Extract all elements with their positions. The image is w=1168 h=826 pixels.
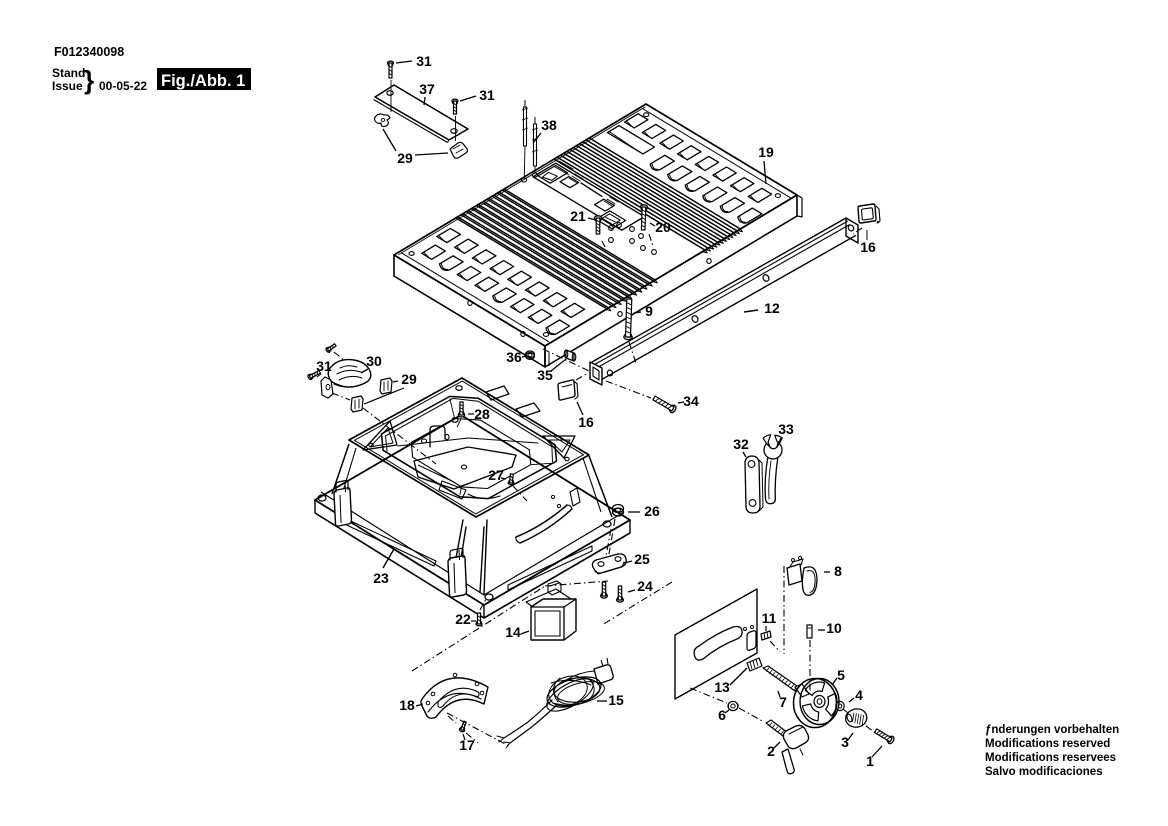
svg-text:2: 2 bbox=[767, 743, 775, 759]
svg-text:27: 27 bbox=[488, 467, 504, 483]
svg-text:33: 33 bbox=[778, 421, 794, 437]
svg-text:}: } bbox=[84, 65, 94, 95]
svg-text:Modifications reserved: Modifications reserved bbox=[985, 738, 1110, 750]
svg-text:21: 21 bbox=[570, 208, 586, 224]
svg-text:Modifications reservees: Modifications reservees bbox=[985, 752, 1116, 764]
svg-text:17: 17 bbox=[459, 737, 475, 753]
svg-text:6: 6 bbox=[718, 707, 726, 723]
svg-text:Fig./Abb. 1: Fig./Abb. 1 bbox=[161, 72, 245, 90]
svg-text:29: 29 bbox=[397, 150, 413, 166]
svg-text:5: 5 bbox=[837, 667, 845, 683]
svg-text:23: 23 bbox=[373, 570, 389, 586]
svg-text:35: 35 bbox=[537, 367, 553, 383]
svg-text:32: 32 bbox=[733, 436, 749, 452]
svg-text:10: 10 bbox=[826, 620, 842, 636]
svg-text:12: 12 bbox=[764, 300, 780, 316]
svg-text:16: 16 bbox=[578, 414, 594, 430]
svg-text:22: 22 bbox=[455, 611, 471, 627]
svg-text:31: 31 bbox=[479, 87, 495, 103]
svg-text:30: 30 bbox=[366, 353, 382, 369]
svg-text:16: 16 bbox=[860, 239, 876, 255]
svg-text:00-05-22: 00-05-22 bbox=[99, 79, 147, 93]
svg-text:Stand: Stand bbox=[52, 66, 85, 80]
svg-text:28: 28 bbox=[474, 406, 490, 422]
svg-text:31: 31 bbox=[316, 358, 332, 374]
svg-text:25: 25 bbox=[634, 551, 650, 567]
svg-text:34: 34 bbox=[683, 393, 699, 409]
svg-text:9: 9 bbox=[645, 303, 653, 319]
svg-text:8: 8 bbox=[834, 563, 842, 579]
svg-text:18: 18 bbox=[399, 697, 415, 713]
svg-text:15: 15 bbox=[608, 692, 624, 708]
svg-text:29: 29 bbox=[401, 371, 417, 387]
svg-text:20: 20 bbox=[655, 219, 671, 235]
svg-text:19: 19 bbox=[758, 144, 774, 160]
svg-text:24: 24 bbox=[637, 578, 653, 594]
svg-text:37: 37 bbox=[419, 81, 435, 97]
svg-text:Issue: Issue bbox=[52, 79, 83, 93]
svg-text:36: 36 bbox=[506, 349, 522, 365]
svg-text:13: 13 bbox=[714, 679, 730, 695]
svg-text:38: 38 bbox=[541, 117, 557, 133]
svg-text:Salvo modificaciones: Salvo modificaciones bbox=[985, 766, 1103, 778]
svg-text:ƒnderungen vorbehalten: ƒnderungen vorbehalten bbox=[985, 724, 1119, 736]
svg-text:11: 11 bbox=[762, 610, 777, 626]
svg-text:14: 14 bbox=[505, 624, 521, 640]
svg-text:F012340098: F012340098 bbox=[54, 45, 124, 59]
svg-text:3: 3 bbox=[841, 734, 849, 750]
svg-text:26: 26 bbox=[644, 503, 660, 519]
svg-text:4: 4 bbox=[855, 687, 863, 703]
svg-text:31: 31 bbox=[416, 53, 432, 69]
